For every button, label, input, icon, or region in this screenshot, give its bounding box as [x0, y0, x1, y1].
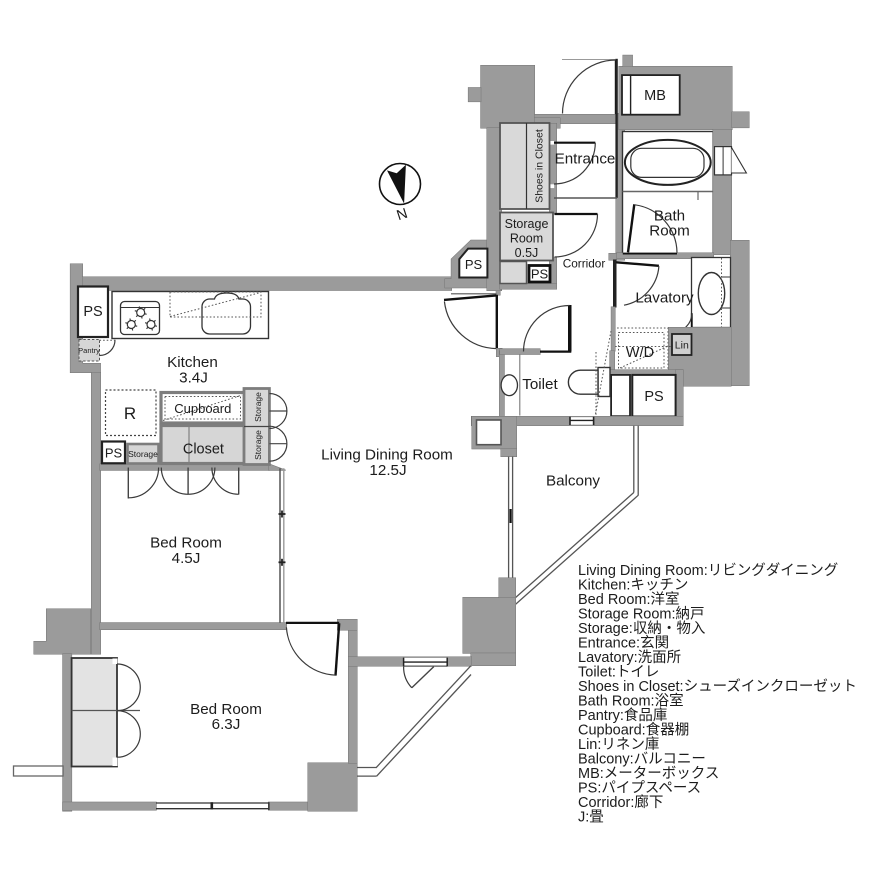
svg-text:W/D: W/D: [626, 345, 654, 361]
svg-text:0.5J: 0.5J: [515, 246, 539, 260]
svg-text:Room: Room: [649, 223, 690, 240]
svg-text:Balcony: Balcony: [546, 473, 600, 490]
svg-text:Lavatory: Lavatory: [635, 290, 694, 307]
svg-text:PS: PS: [531, 267, 549, 282]
svg-text:Corridor:廊下: Corridor:廊下: [578, 794, 663, 811]
svg-text:Entrance: Entrance: [555, 151, 616, 168]
svg-text:PS: PS: [105, 446, 123, 461]
svg-text:Living Dining Room: Living Dining Room: [321, 447, 453, 464]
svg-text:Shoes in Closet: Shoes in Closet: [534, 129, 546, 203]
svg-text:Shoes in Closet:シューズインクローゼット: Shoes in Closet:シューズインクローゼット: [578, 678, 857, 695]
svg-text:12.5J: 12.5J: [369, 462, 406, 479]
svg-text:Pantry: Pantry: [78, 346, 100, 355]
svg-text:PS:パイプスペース: PS:パイプスペース: [578, 779, 701, 796]
svg-text:Storage: Storage: [505, 217, 549, 231]
svg-text:Storage Room:納戸: Storage Room:納戸: [578, 605, 705, 622]
svg-text:Bath Room:浴室: Bath Room:浴室: [578, 692, 684, 709]
svg-text:PS: PS: [83, 304, 102, 320]
svg-text:PS: PS: [465, 257, 483, 272]
svg-text:Lin:リネン庫: Lin:リネン庫: [578, 736, 659, 753]
svg-text:Living Dining Room:リビングダイニング: Living Dining Room:リビングダイニング: [578, 562, 838, 579]
svg-text:6.3J: 6.3J: [212, 716, 241, 733]
svg-text:Storage: Storage: [253, 430, 263, 460]
svg-text:Closet: Closet: [183, 442, 224, 458]
svg-text:J:畳: J:畳: [578, 809, 604, 825]
svg-text:MB: MB: [644, 88, 666, 104]
svg-text:R: R: [124, 404, 136, 423]
svg-text:Storage: Storage: [128, 449, 158, 459]
svg-text:Pantry:食品庫: Pantry:食品庫: [578, 707, 667, 724]
svg-text:Room: Room: [510, 232, 543, 246]
svg-text:Bed Room:洋室: Bed Room:洋室: [578, 591, 680, 608]
svg-text:Toilet: Toilet: [522, 376, 558, 393]
svg-text:Kitchen: Kitchen: [167, 354, 218, 371]
svg-text:Cupboard: Cupboard: [174, 401, 231, 416]
svg-text:Lavatory:洗面所: Lavatory:洗面所: [578, 649, 681, 666]
svg-text:Storage:収納・物入: Storage:収納・物入: [578, 620, 705, 637]
svg-text:Storage: Storage: [253, 392, 263, 422]
svg-text:Corridor: Corridor: [563, 257, 606, 271]
svg-text:Lin: Lin: [675, 340, 689, 352]
svg-text:PS: PS: [644, 389, 663, 405]
svg-text:MB:メーターボックス: MB:メーターボックス: [578, 765, 719, 782]
svg-text:4.5J: 4.5J: [172, 550, 201, 567]
svg-text:Entrance:玄関: Entrance:玄関: [578, 634, 669, 651]
svg-text:3.4J: 3.4J: [179, 370, 208, 387]
svg-text:Bed Room: Bed Room: [150, 535, 222, 552]
svg-text:Cupboard:食器棚: Cupboard:食器棚: [578, 721, 689, 738]
